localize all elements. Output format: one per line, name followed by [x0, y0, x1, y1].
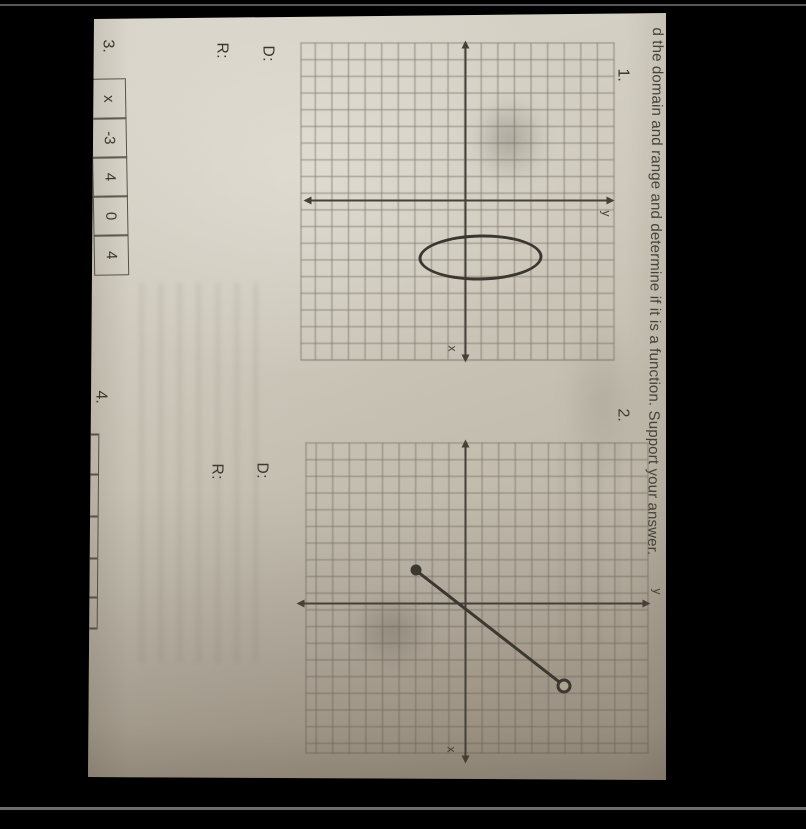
axis-arrow-up-icon: [606, 196, 614, 204]
problem4-table-partial: [88, 433, 99, 629]
table-cell-value-1: 4: [92, 156, 128, 197]
problem3-table: x -3 4 0 4: [90, 78, 128, 276]
open-endpoint-dot: [557, 678, 572, 693]
problem1-domain-label: D:: [258, 45, 276, 62]
axis-arrow-down-icon: [303, 196, 311, 204]
grid-lines: [305, 442, 648, 753]
x-axis: [464, 445, 466, 757]
worksheet-page: d the domain and range and determine if …: [88, 13, 666, 780]
y-axis: [300, 602, 646, 604]
table-cell-value-3: 4: [93, 234, 129, 275]
problem2-domain-label: D:: [252, 462, 270, 479]
worksheet-photo: d the domain and range and determine if …: [88, 13, 666, 780]
table-border: [88, 596, 96, 598]
table-border: [88, 473, 98, 475]
y-axis-label: y: [599, 210, 613, 216]
table-border: [88, 557, 97, 559]
table-border: [88, 433, 98, 435]
x-axis-label: x: [444, 746, 458, 752]
problem1-number: 1.: [613, 68, 631, 81]
bottom-frame-line: [0, 807, 806, 810]
table-cell-x-header: x: [90, 78, 126, 119]
problem2-range-label: R:: [207, 463, 225, 480]
problem2-number: 2.: [613, 408, 631, 421]
problem4-number: 4.: [91, 390, 109, 403]
closed-endpoint-dot: [411, 564, 422, 575]
problem3-number: 3.: [98, 39, 116, 52]
axis-arrow-right-icon: [462, 354, 470, 362]
x-axis-label: x: [445, 345, 459, 351]
top-frame-line: [0, 4, 806, 6]
screenshot-stage: d the domain and range and determine if …: [0, 0, 806, 829]
y-axis-label: y: [650, 588, 664, 594]
table-border: [88, 515, 97, 517]
table-cell-value-0: -3: [91, 117, 127, 158]
problem2-grid: x y: [305, 442, 648, 753]
axis-arrow-up-icon: [642, 599, 650, 607]
axis-arrow-left-icon: [462, 40, 470, 48]
problem1-grid: x y: [300, 42, 614, 360]
table-cell-value-2: 0: [92, 195, 128, 236]
axis-arrow-right-icon: [462, 755, 470, 763]
axis-arrow-left-icon: [462, 439, 470, 447]
problem1-range-label: R:: [212, 42, 230, 59]
axis-arrow-down-icon: [296, 599, 304, 607]
y-axis: [305, 199, 610, 201]
table-border: [88, 627, 96, 629]
